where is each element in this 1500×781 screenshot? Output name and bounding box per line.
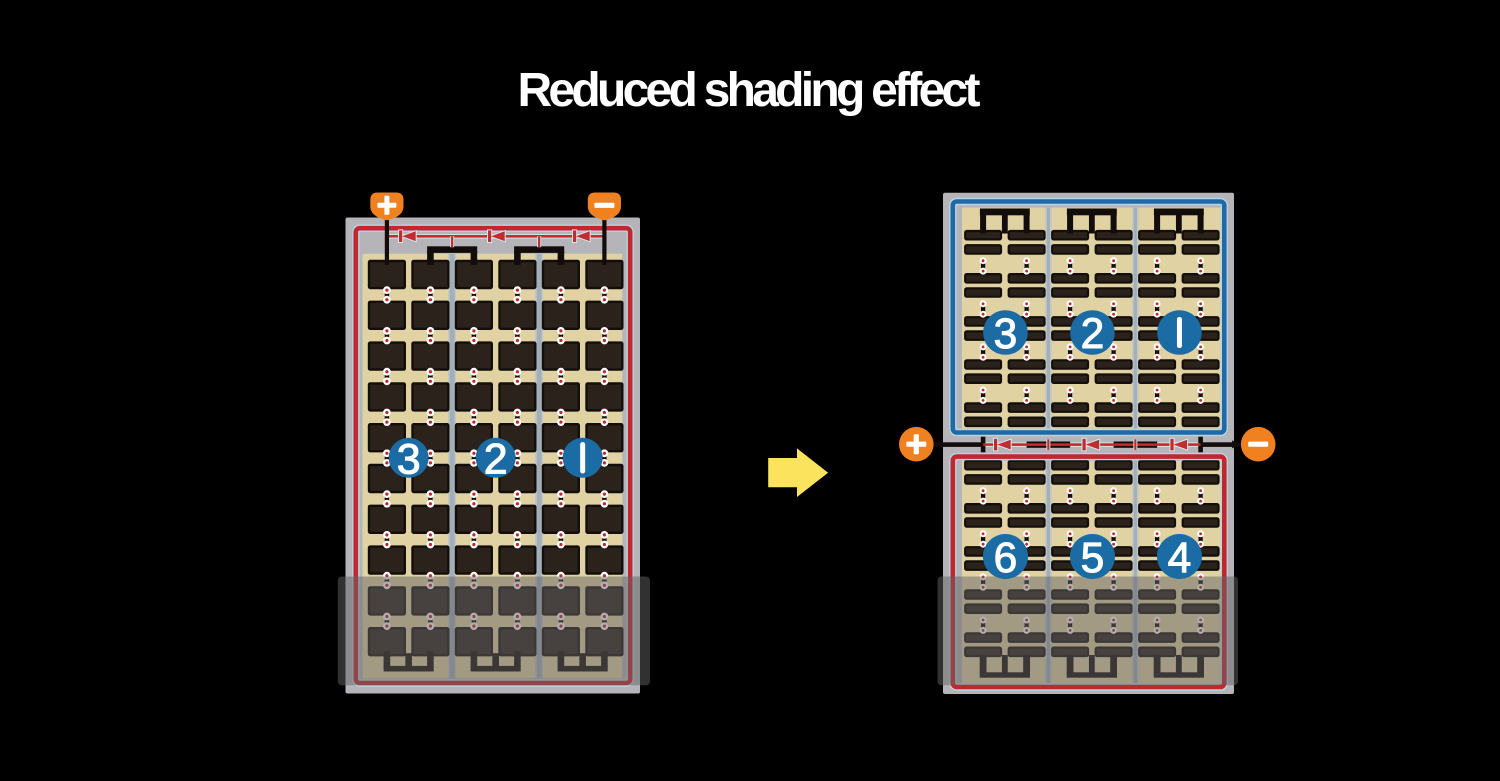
svg-text:5: 5 [1081, 535, 1105, 582]
svg-text:Reduced shading effect: Reduced shading effect [518, 64, 981, 117]
svg-text:3: 3 [397, 435, 421, 483]
svg-text:2: 2 [1081, 311, 1105, 358]
svg-text:6: 6 [994, 535, 1018, 582]
svg-text:4: 4 [1168, 535, 1192, 582]
svg-text:2: 2 [484, 435, 508, 483]
svg-text:3: 3 [994, 311, 1018, 358]
